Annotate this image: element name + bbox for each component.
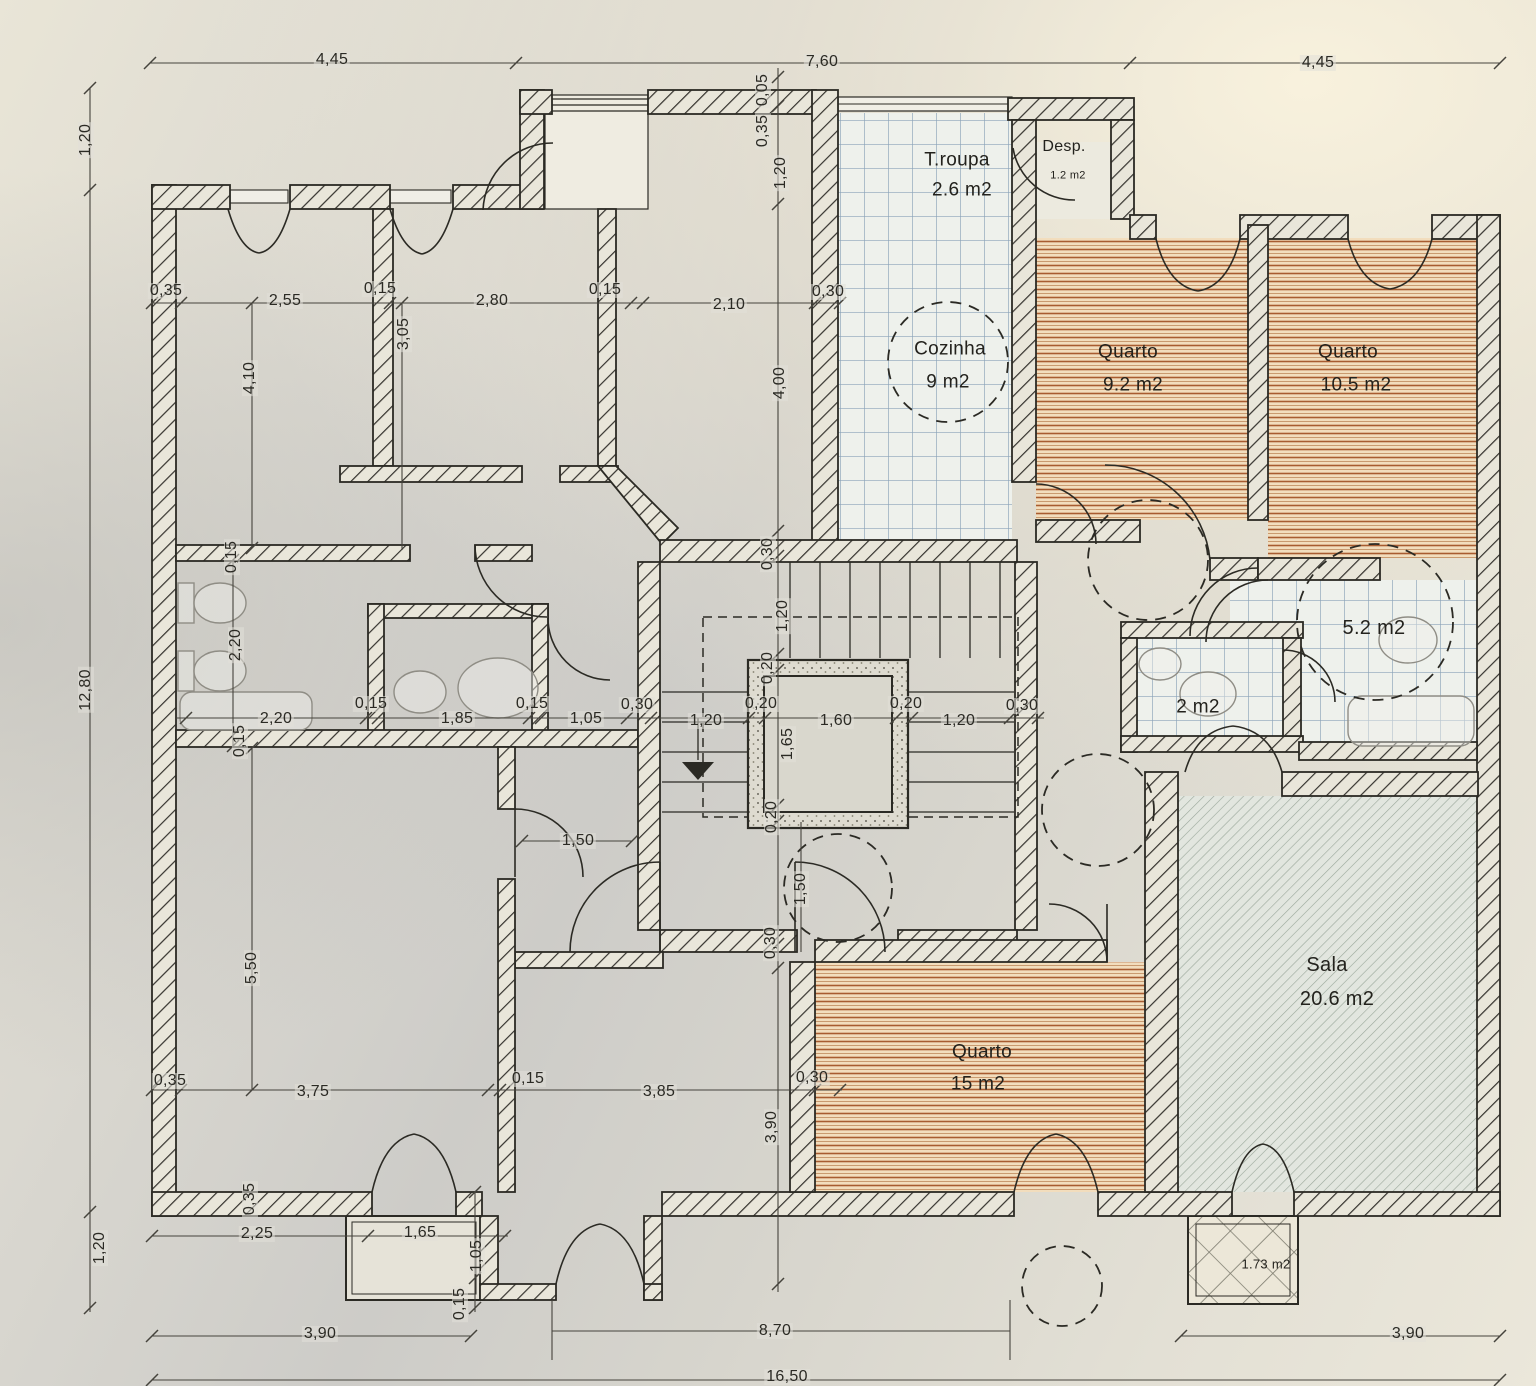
- wall-top-mid-a: [520, 90, 552, 114]
- bathtub-right: [1348, 696, 1474, 746]
- dim-label: 0,35: [755, 113, 771, 149]
- dim-label: 1,65: [780, 726, 796, 762]
- wall-wc-top: [1121, 622, 1303, 638]
- wall-bottom-d: [1294, 1192, 1500, 1216]
- dim-label: 1,05: [568, 711, 604, 727]
- wall-below-rooms-a: [340, 466, 522, 482]
- wall-bottom-c: [1098, 1192, 1232, 1216]
- dim-label: 0,15: [232, 723, 248, 759]
- dim-label: 1,65: [402, 1225, 438, 1241]
- room-area-troupa: 2.6 m2: [932, 181, 992, 200]
- dim-label: 3,90: [1390, 1326, 1426, 1342]
- wall-bottom-a: [152, 1192, 372, 1216]
- wall-kitchen-left: [812, 90, 838, 558]
- dim-label: 1,20: [78, 122, 94, 158]
- wall-between-bedrooms: [1248, 225, 1268, 520]
- wall-room-nw2-right: [598, 209, 616, 466]
- room-label-sala: Sala: [1306, 955, 1347, 975]
- wall-between-rooms-nw: [373, 209, 393, 466]
- door-v-nw1: [228, 209, 290, 253]
- dim-label: 1,50: [793, 871, 809, 907]
- door-innerbath: [548, 618, 610, 680]
- door-v-nw2: [390, 209, 453, 254]
- dim-label: 3,90: [764, 1109, 780, 1145]
- toilet-tank-1: [178, 583, 194, 623]
- door-v-jut: [556, 1224, 644, 1284]
- dim-label: 3,85: [641, 1084, 677, 1100]
- wall-sala-top: [1282, 772, 1478, 796]
- wall-exterior-right: [1477, 215, 1500, 1216]
- wall-bath-top-b: [475, 545, 532, 561]
- room-area-varanda: 1.73 m2: [1241, 1258, 1290, 1271]
- dim-label: 1,60: [818, 713, 854, 729]
- dim-label: 0,15: [353, 696, 389, 712]
- wall-pantry-right: [1111, 120, 1134, 219]
- dim-label: 2,25: [239, 1226, 275, 1242]
- dim-label: 0,15: [587, 282, 623, 298]
- wall-top-right-a: [1130, 215, 1156, 239]
- dim-label: 12,80: [78, 667, 94, 713]
- dim-label: 1,20: [688, 713, 724, 729]
- circle-hall-e: [1042, 754, 1154, 866]
- toilet-bowl-3: [394, 671, 446, 713]
- wall-bottom-stub: [456, 1192, 482, 1216]
- dim-label: 0,30: [810, 284, 846, 300]
- room-area-quarto-ne: 9.2 m2: [1103, 376, 1163, 395]
- wall-jut-bottom-a: [480, 1284, 556, 1300]
- dim-label: 0,15: [224, 539, 240, 575]
- toilet-tank-2: [178, 651, 194, 691]
- dim-label: 8,70: [757, 1323, 793, 1339]
- wall-bath-top-a: [176, 545, 410, 561]
- dim-label: 0,15: [362, 281, 398, 297]
- room-area-wc: 2 m2: [1176, 698, 1219, 717]
- entry-porch-fill: [545, 95, 648, 209]
- wall-sala-left: [1145, 772, 1178, 1192]
- dim-label: 0,35: [152, 1073, 188, 1089]
- room-area-cozinha: 9 m2: [926, 373, 969, 392]
- dim-label: 0,20: [888, 696, 924, 712]
- dim-label: 1,05: [469, 1238, 485, 1274]
- room-area-desp: 1.2 m2: [1050, 171, 1085, 182]
- circle-balcony: [1022, 1246, 1102, 1326]
- dim-label: 2,80: [474, 293, 510, 309]
- dim-label: 3,05: [396, 316, 412, 352]
- dim-label: 0,30: [763, 925, 779, 961]
- room-label-desp: Desp.: [1042, 139, 1085, 155]
- dim-label: 2,20: [228, 627, 244, 663]
- dim-label: 0,15: [514, 696, 550, 712]
- dim-label: 0,30: [1004, 698, 1040, 714]
- room-area-quarto-s: 15 m2: [951, 1075, 1005, 1094]
- dim-label: 3,75: [295, 1084, 331, 1100]
- wall-top-mid-b: [648, 90, 816, 114]
- dim-label: 0,30: [619, 697, 655, 713]
- dim-label: 0,20: [743, 696, 779, 712]
- window-troupa: [838, 97, 1012, 111]
- room-label-cozinha: Cozinha: [914, 340, 986, 359]
- dim-label: 16,50: [764, 1369, 810, 1385]
- dim-label: 4,00: [772, 365, 788, 401]
- dim-label: 0,35: [148, 283, 184, 299]
- dim-label: 1,50: [560, 833, 596, 849]
- wall-jut-bottom-b: [644, 1284, 662, 1300]
- door-v-bottom-left: [372, 1134, 456, 1192]
- dim-label: 0,20: [764, 799, 780, 835]
- wall-diagonal-corridor: [598, 466, 678, 544]
- stair-direction-arrow: [682, 762, 714, 780]
- floor-plan-drawing: [0, 0, 1536, 1386]
- room-area-quarto-e: 10.5 m2: [1321, 376, 1392, 395]
- wall-hall-top: [660, 540, 1017, 562]
- room-label-troupa: T.roupa: [924, 151, 989, 170]
- room-label-quarto-ne: Quarto: [1098, 343, 1158, 362]
- wall-bedroom-e-bottom: [1258, 558, 1380, 580]
- toilet-bowl-1: [194, 583, 246, 623]
- dim-label: 0,15: [452, 1286, 468, 1322]
- dim-label: 0,15: [510, 1071, 546, 1087]
- wall-bl-room-right-b: [498, 879, 515, 1192]
- wall-innerbath-top: [368, 604, 548, 618]
- dim-label: 0,35: [242, 1181, 258, 1217]
- dim-label: 7,60: [804, 54, 840, 70]
- dim-label: 4,45: [1300, 55, 1336, 71]
- wall-hall-left: [638, 562, 660, 930]
- wall-bl-room-right-a: [498, 747, 515, 809]
- wall-top-left-b: [290, 185, 390, 209]
- dim-label: 2,55: [267, 293, 303, 309]
- kitchen-tile-fill: [838, 113, 1012, 540]
- room-label-quarto-e: Quarto: [1318, 343, 1378, 362]
- dim-label: 1,20: [92, 1230, 108, 1266]
- wall-top-left-a: [152, 185, 230, 209]
- room-area-sala: 20.6 m2: [1300, 989, 1374, 1009]
- wall-corridor-bottom: [515, 952, 663, 968]
- dim-label: 1,20: [775, 598, 791, 634]
- dim-label: 0,20: [760, 650, 776, 686]
- dim-label: 4,45: [314, 52, 350, 68]
- dim-label: 5,50: [244, 950, 260, 986]
- wall-pantry-top: [1008, 98, 1134, 120]
- bedroom-e-fill: [1268, 238, 1477, 558]
- room-area-banho: 5.2 m2: [1343, 618, 1406, 638]
- floor-plan-page: T.roupa 2.6 m2 Desp. 1.2 m2 Cozinha 9 m2…: [0, 0, 1536, 1386]
- room-label-quarto-s: Quarto: [952, 1043, 1012, 1062]
- wall-quarto-s-top: [815, 940, 1107, 962]
- dim-label: 0,05: [755, 72, 771, 108]
- dim-label: 3,90: [302, 1326, 338, 1342]
- dim-label: 2,10: [711, 297, 747, 313]
- washbasin-wc: [1139, 648, 1181, 680]
- dim-label: 1,20: [773, 155, 789, 191]
- dim-label: 1,85: [439, 711, 475, 727]
- wall-bedroom-ne-bottom: [1036, 520, 1140, 542]
- dim-label: 4,10: [242, 360, 258, 396]
- dim-label: 1,20: [941, 713, 977, 729]
- dim-label: 0,30: [760, 536, 776, 572]
- wall-wc-left: [1121, 638, 1137, 752]
- wall-exterior-left: [152, 185, 176, 1216]
- wall-wc-bottom: [1121, 736, 1303, 752]
- dim-label: 0,30: [794, 1070, 830, 1086]
- wall-bottom-b: [662, 1192, 1014, 1216]
- dim-label: 2,20: [258, 711, 294, 727]
- wall-bath-mid: [368, 604, 384, 746]
